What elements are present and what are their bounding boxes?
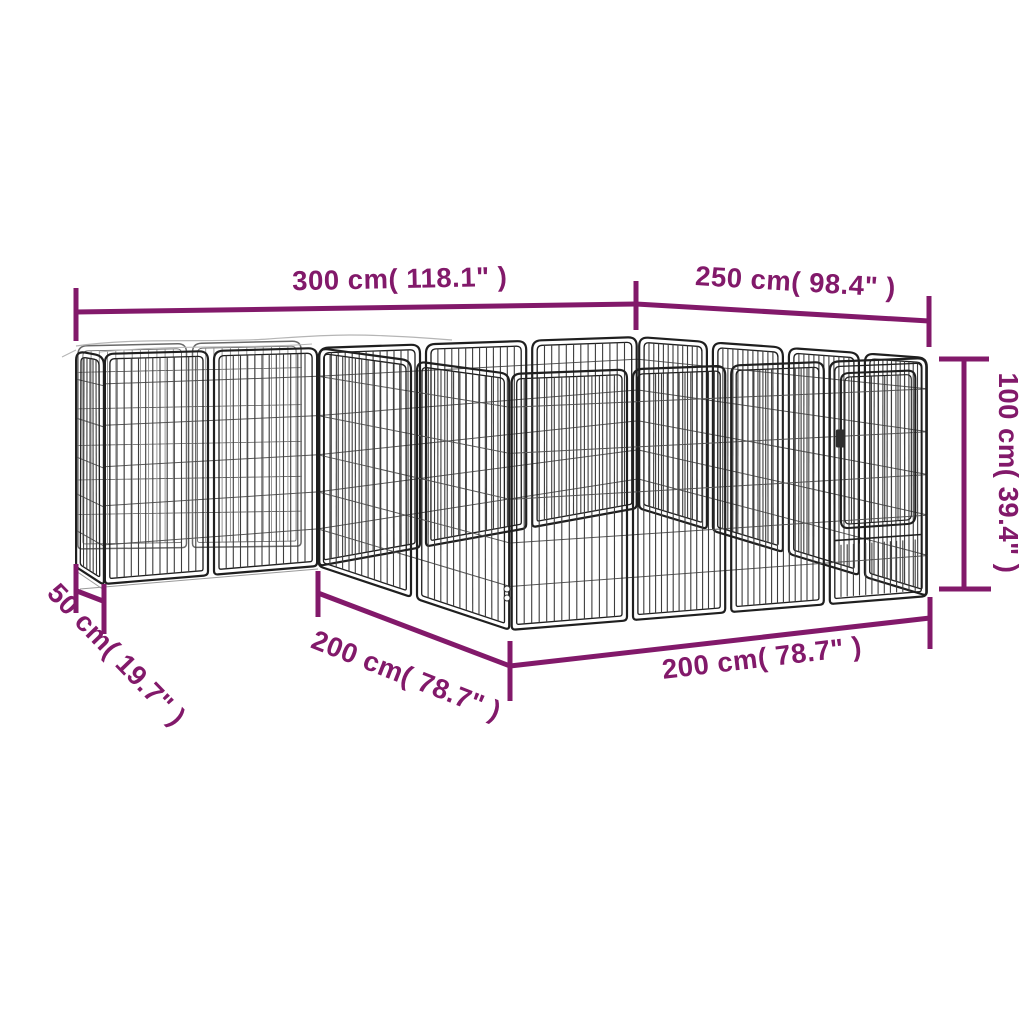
door-latch bbox=[836, 430, 845, 448]
pen-wall-front-left bbox=[318, 349, 510, 629]
pen-line bbox=[104, 455, 318, 467]
pen-wall-front-right bbox=[510, 358, 928, 629]
pen-panel bbox=[319, 345, 420, 565]
dimension-label-top-left: 300 cm( 118.1" ) bbox=[292, 261, 508, 297]
dimension-label-front-left-length: 200 cm( 78.7" ) bbox=[307, 624, 505, 726]
pen-line bbox=[318, 455, 510, 500]
pen-line bbox=[77, 368, 302, 373]
pen-line bbox=[318, 416, 510, 454]
dimension-line bbox=[636, 304, 929, 321]
pen-line bbox=[77, 476, 302, 480]
pen-line bbox=[84, 357, 85, 567]
pen-wall-corridor-end bbox=[76, 352, 104, 583]
playpen-wireframe bbox=[62, 335, 928, 630]
pen-line bbox=[80, 569, 318, 589]
dimension-top-left-width: 300 cm( 118.1" ) bbox=[76, 261, 636, 341]
dimension-label-left-depth: 50 cm( 19.7" ) bbox=[41, 577, 192, 732]
pen-line bbox=[96, 360, 97, 575]
pen-line bbox=[104, 376, 318, 384]
dimension-left-depth: 50 cm( 19.7" ) bbox=[41, 564, 192, 732]
pen-line bbox=[77, 441, 302, 445]
dimension-top-right-width: 250 cm( 98.4" ) bbox=[636, 260, 929, 347]
dimension-right-height: 100 cm( 39.4" ) bbox=[939, 359, 1024, 589]
panel-frame bbox=[319, 345, 420, 565]
pen-panel bbox=[76, 352, 104, 583]
dimension-label-right-height: 100 cm( 39.4" ) bbox=[993, 373, 1024, 574]
pen-line bbox=[77, 511, 302, 514]
pen-line bbox=[77, 405, 302, 409]
pen-panel bbox=[731, 362, 824, 611]
pen-line bbox=[104, 416, 318, 426]
dimension-line bbox=[76, 304, 636, 312]
pen-line bbox=[318, 492, 510, 543]
corner-hinge bbox=[504, 595, 510, 601]
pen-line bbox=[318, 376, 510, 407]
pen-line bbox=[104, 492, 318, 506]
dimension-label-top-right: 250 cm( 98.4" ) bbox=[694, 260, 896, 303]
pen-panel bbox=[633, 366, 725, 620]
dimension-front-left-length: 200 cm( 78.7" ) bbox=[307, 571, 510, 726]
corner-hinge bbox=[504, 586, 510, 592]
pen-top-edge bbox=[62, 350, 76, 357]
dimension-diagram-canvas: 300 cm( 118.1" ) 250 cm( 98.4" ) 100 cm(… bbox=[0, 0, 1024, 1024]
pen-panel bbox=[78, 344, 187, 549]
pen-wall-corridor-back bbox=[77, 341, 302, 549]
